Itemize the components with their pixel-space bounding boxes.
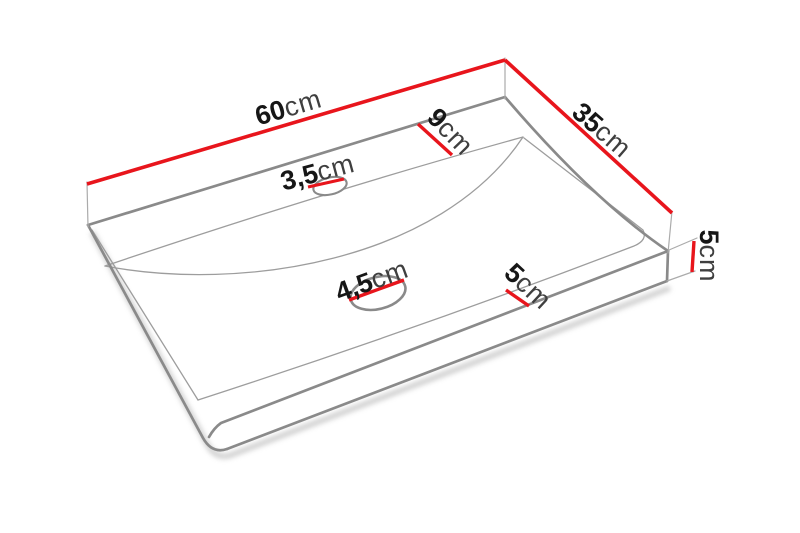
diagram-canvas: 60cm 35cm 9cm 3,5cm 4,5cm 5cm 5cm (0, 0, 800, 533)
right-corner-vertical-edge (667, 251, 668, 281)
depth-label: 35cm (566, 97, 637, 164)
inner-left-rim-line (92, 230, 198, 400)
front-and-right-rim-line (198, 138, 644, 400)
back-rim-label: 9cm (421, 102, 479, 161)
front-rim-label: 5cm (499, 257, 558, 315)
extension-right (668, 211, 672, 253)
extension-left (87, 182, 88, 227)
thickness-label: 5cm (694, 229, 724, 282)
dimension-labels: 60cm 35cm 9cm 3,5cm 4,5cm 5cm 5cm (252, 83, 724, 315)
front-top-edge (209, 251, 668, 437)
extension-thickness-bottom (667, 271, 695, 281)
extension-lines (87, 58, 697, 281)
washbasin-dimension-diagram: 60cm 35cm 9cm 3,5cm 4,5cm 5cm 5cm (0, 0, 800, 533)
front-bottom-edge (227, 281, 667, 449)
thickness-dimension-line (692, 241, 694, 272)
